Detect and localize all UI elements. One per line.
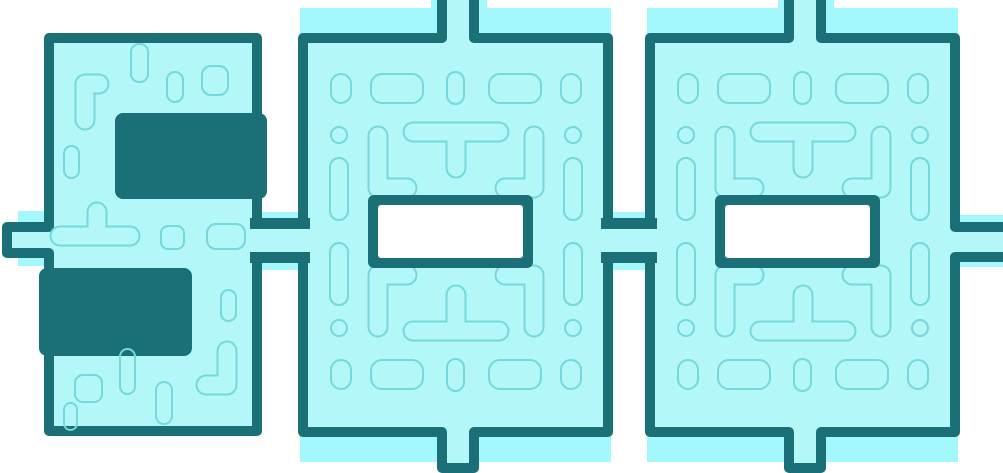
digit-0-second-block (650, 0, 1003, 468)
error-500-illustration (0, 0, 1003, 473)
digit-0-first-hole (368, 195, 533, 268)
hole-white (725, 205, 870, 258)
digit-0-second-hole (715, 195, 880, 268)
maze-digits-canvas (0, 0, 1003, 473)
digit-5-notch-bottom (39, 268, 192, 356)
connector-bridge-right (601, 218, 657, 263)
digit-5-block (7, 38, 267, 431)
hole-white (378, 205, 523, 258)
connector-bridge-left (250, 218, 310, 263)
bridge-channel (601, 229, 657, 252)
digit-5-notch-top (115, 113, 267, 199)
digit-0-first-block (303, 0, 608, 468)
bridge-channel (250, 229, 310, 252)
